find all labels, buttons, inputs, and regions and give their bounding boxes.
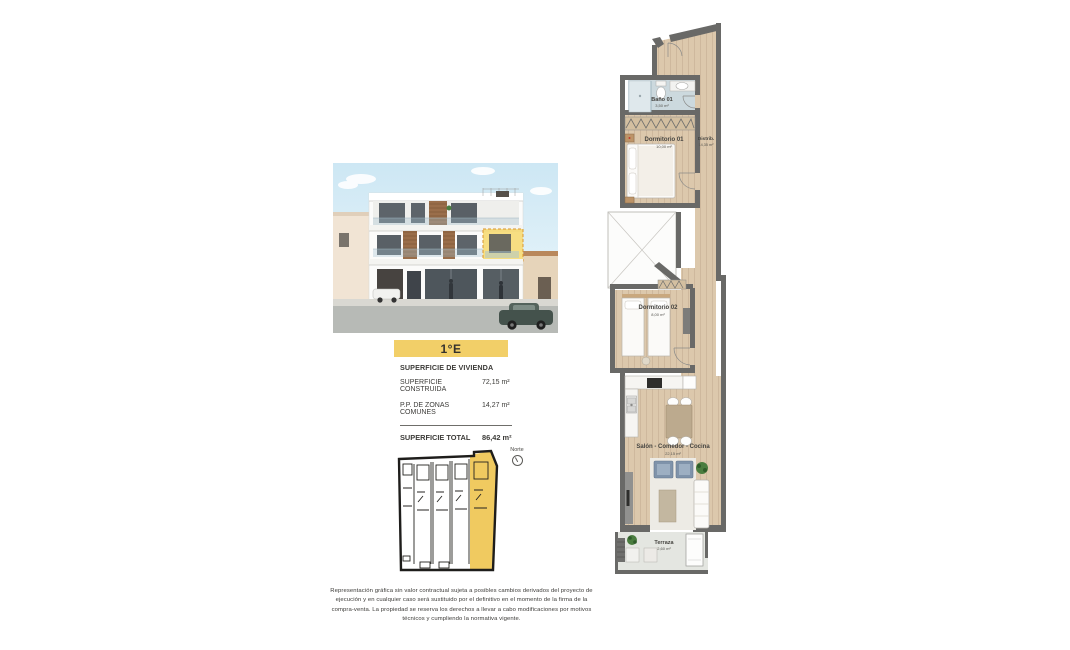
compass-label: Norte bbox=[506, 447, 528, 453]
room-area-bedroom2: 8,00 m² bbox=[651, 312, 665, 317]
sink bbox=[676, 83, 688, 90]
room-label-distributor: Distrib. bbox=[698, 136, 715, 142]
building-render-art bbox=[333, 163, 558, 333]
room-area-distributor: 14,35 m² bbox=[699, 143, 715, 147]
table-total-row: SUPERFICIE TOTAL 86,42 m² bbox=[400, 433, 550, 442]
left-neighbor-building bbox=[333, 212, 371, 303]
table-row: SUPERFICIE CONSTRUIDA 72,15 m² bbox=[400, 379, 550, 393]
top-floor bbox=[373, 201, 519, 225]
row-value: 72,15 m² bbox=[482, 379, 522, 393]
room-label-bedroom1: Dormitorio 01 bbox=[644, 137, 684, 143]
side-table bbox=[642, 357, 650, 365]
pillow bbox=[629, 148, 636, 169]
plant bbox=[696, 462, 708, 474]
lightwell bbox=[608, 212, 676, 288]
roof-planter bbox=[496, 191, 509, 197]
wardrobe bbox=[658, 280, 686, 289]
disclaimer-text: Representación gráfica sin valor contrac… bbox=[330, 587, 593, 624]
floor-plan-art: Baño 01 3,50 m² Dormitorio 01 10,00 m² D… bbox=[598, 20, 768, 582]
dining-furniture bbox=[666, 398, 692, 446]
total-label: SUPERFICIE TOTAL bbox=[400, 433, 482, 442]
location-plan: Norte bbox=[390, 444, 530, 580]
building-render bbox=[333, 163, 558, 333]
surface-table: SUPERFICIE DE VIVIENDA SUPERFICIE CONSTR… bbox=[400, 363, 550, 451]
total-value: 86,42 m² bbox=[482, 433, 522, 442]
room-label-living: Salón - Comedor - Cocina bbox=[636, 444, 710, 450]
tv bbox=[627, 490, 630, 506]
main-building bbox=[369, 188, 523, 303]
room-area-terrace: 2,60 m² bbox=[657, 546, 671, 551]
nightstand bbox=[625, 197, 634, 203]
row-value: 14,27 m² bbox=[482, 402, 522, 416]
floor-plan: Baño 01 3,50 m² Dormitorio 01 10,00 m² D… bbox=[598, 20, 768, 582]
table-divider bbox=[400, 425, 512, 426]
louver-unit bbox=[617, 538, 625, 562]
fridge bbox=[683, 376, 696, 389]
unit-badge-label: 1°E bbox=[441, 342, 462, 356]
terrace-table bbox=[626, 548, 639, 562]
closet bbox=[683, 308, 690, 334]
north-compass: Norte bbox=[506, 447, 528, 466]
row-label: P.P. DE ZONAS COMUNES bbox=[400, 402, 482, 416]
right-neighbor-building bbox=[521, 251, 558, 303]
table-row: P.P. DE ZONAS COMUNES 14,27 m² bbox=[400, 402, 550, 416]
room-label-bedroom2: Dormitorio 02 bbox=[638, 305, 678, 311]
pillow bbox=[629, 173, 636, 194]
cooktop bbox=[647, 378, 662, 388]
headboard bbox=[622, 294, 670, 298]
wardrobe bbox=[625, 117, 695, 130]
terrace-stool bbox=[644, 548, 657, 562]
highlighted-unit bbox=[483, 229, 523, 261]
unit-badge: 1°E bbox=[394, 340, 508, 357]
person-silhouette bbox=[449, 283, 453, 300]
room-area-bathroom: 3,50 m² bbox=[655, 103, 669, 108]
surface-table-header: SUPERFICIE DE VIVIENDA bbox=[400, 363, 550, 372]
location-plan-art bbox=[390, 444, 505, 576]
middle-floor bbox=[373, 231, 483, 259]
compass-needle bbox=[515, 457, 518, 461]
room-area-living: 22,15 m² bbox=[665, 451, 681, 456]
row-label: SUPERFICIE CONSTRUIDA bbox=[400, 379, 482, 393]
coffee-table bbox=[659, 490, 676, 522]
room-area-bedroom1: 10,00 m² bbox=[656, 144, 672, 149]
dining-table bbox=[666, 405, 692, 438]
compass-dial bbox=[512, 455, 523, 466]
